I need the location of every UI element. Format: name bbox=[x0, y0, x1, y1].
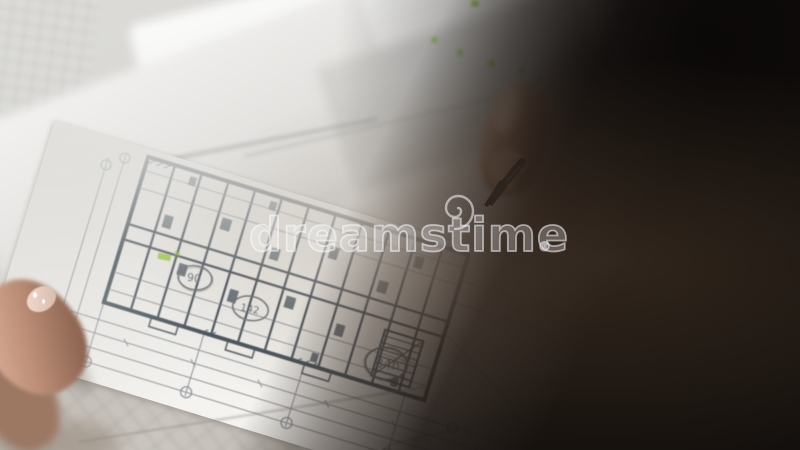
photo-stage: 90 142 34h dreamstime ® bbox=[0, 0, 800, 450]
registered-trademark-icon: ® bbox=[538, 240, 551, 255]
watermark-text: dreamstime bbox=[249, 212, 569, 258]
